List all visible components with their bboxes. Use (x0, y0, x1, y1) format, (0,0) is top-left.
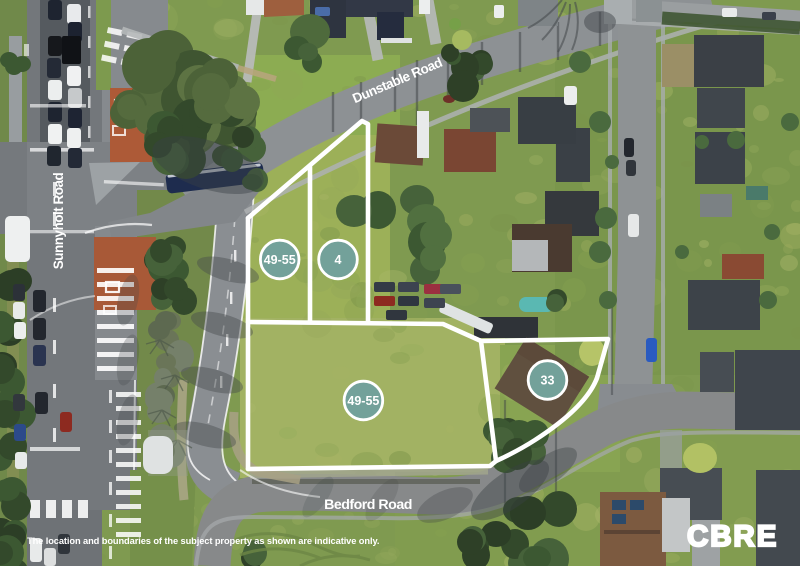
svg-text:33: 33 (541, 374, 555, 388)
svg-text:4: 4 (335, 253, 342, 267)
svg-text:Bedford Road: Bedford Road (324, 497, 412, 513)
svg-text:49-55: 49-55 (347, 394, 379, 408)
svg-text:49-55: 49-55 (264, 253, 296, 267)
svg-text:Sunnyholt Road: Sunnyholt Road (51, 173, 66, 270)
svg-text:CBRE: CBRE (687, 520, 778, 553)
svg-text:The location and boundaries of: The location and boundaries of the subje… (27, 536, 379, 546)
